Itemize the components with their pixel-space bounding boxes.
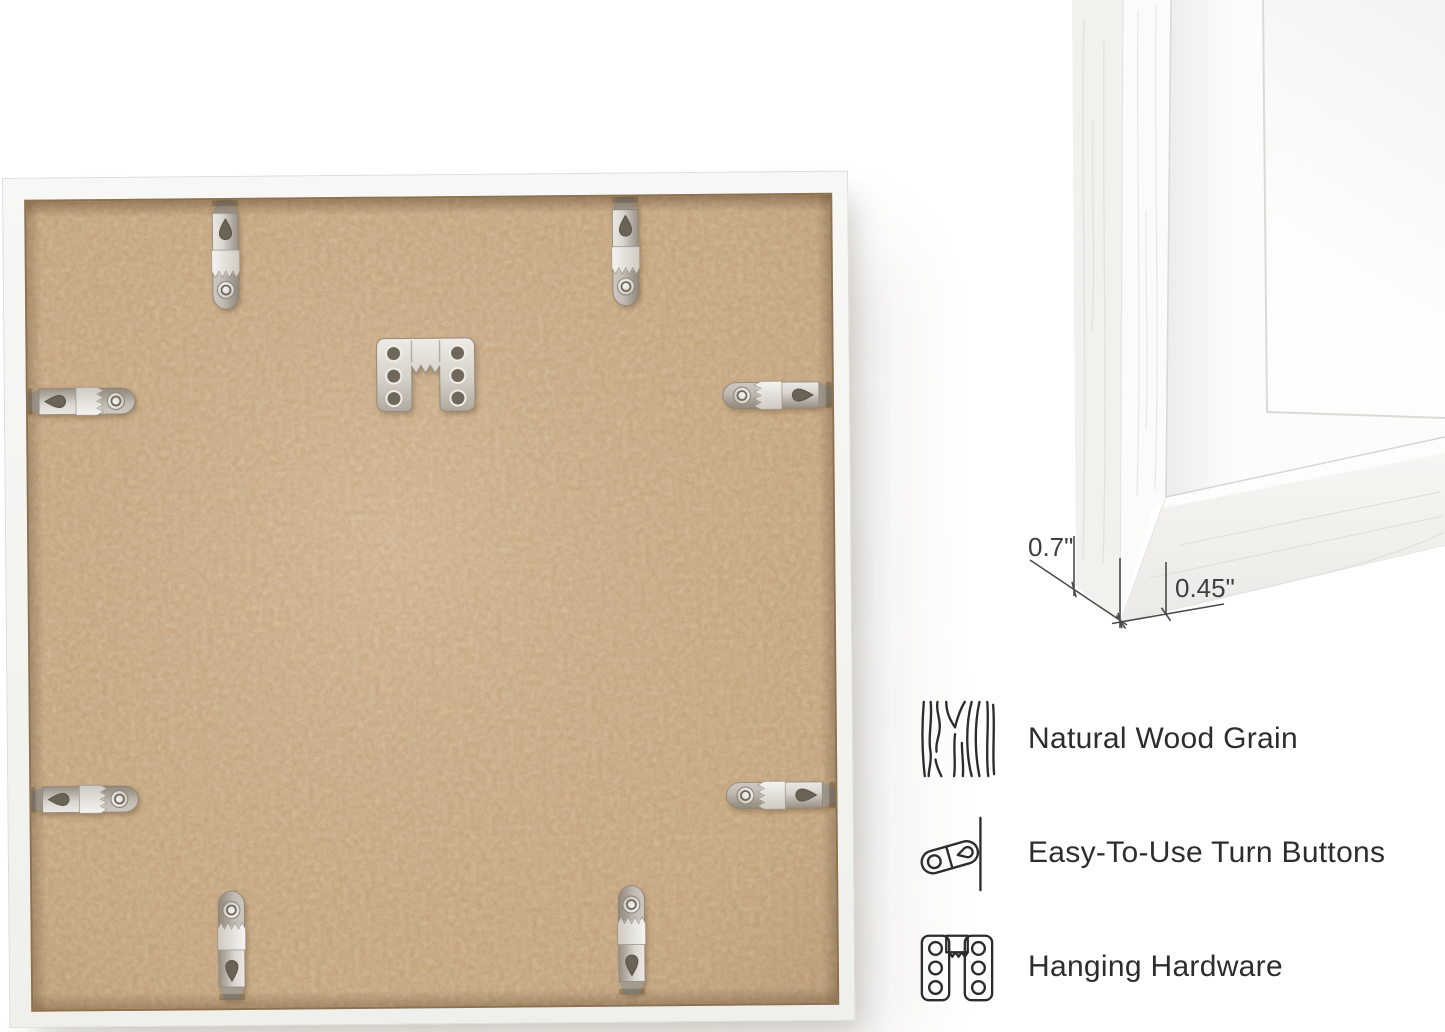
frame-back-photo <box>2 171 855 1028</box>
turn-button-left-lower <box>29 785 138 814</box>
turn-button-bottom-left <box>217 891 246 1000</box>
mdf-board-hardware <box>26 195 837 1010</box>
face-dimension-label: 0.45" <box>1175 573 1235 603</box>
hanging-hardware-icon <box>916 926 998 1008</box>
depth-dimension-label: 0.7" <box>1028 532 1073 562</box>
feature-row-hanging-hardware: Hanging Hardware <box>916 926 1431 1008</box>
feature-row-turn-buttons: Easy-To-Use Turn Buttons <box>916 812 1431 894</box>
turn-button-icon <box>916 812 998 894</box>
turn-button-top-left <box>211 200 240 309</box>
feature-label: Hanging Hardware <box>1028 950 1283 984</box>
feature-row-wood-grain: Natural Wood Grain <box>916 698 1431 780</box>
feature-label: Natural Wood Grain <box>1028 722 1298 756</box>
turn-button-right-upper <box>723 381 832 410</box>
turn-button-left-upper <box>26 387 135 416</box>
wood-grain-icon <box>916 698 998 780</box>
turn-button-right-lower <box>726 781 835 810</box>
corner-detail-photo: 0.7" 0.45" <box>1000 0 1445 680</box>
feature-label: Easy-To-Use Turn Buttons <box>1028 836 1385 870</box>
turn-button-top-right <box>611 196 640 305</box>
mdf-board <box>24 193 839 1012</box>
moulding-side-face <box>1072 0 1123 622</box>
feature-list: Natural Wood Grain Easy-To-Use Turn Butt… <box>916 698 1431 1032</box>
artwork-opening <box>1263 0 1445 418</box>
turn-button-bottom-right <box>617 885 646 994</box>
product-image: 0.7" 0.45" <box>0 0 1445 1032</box>
